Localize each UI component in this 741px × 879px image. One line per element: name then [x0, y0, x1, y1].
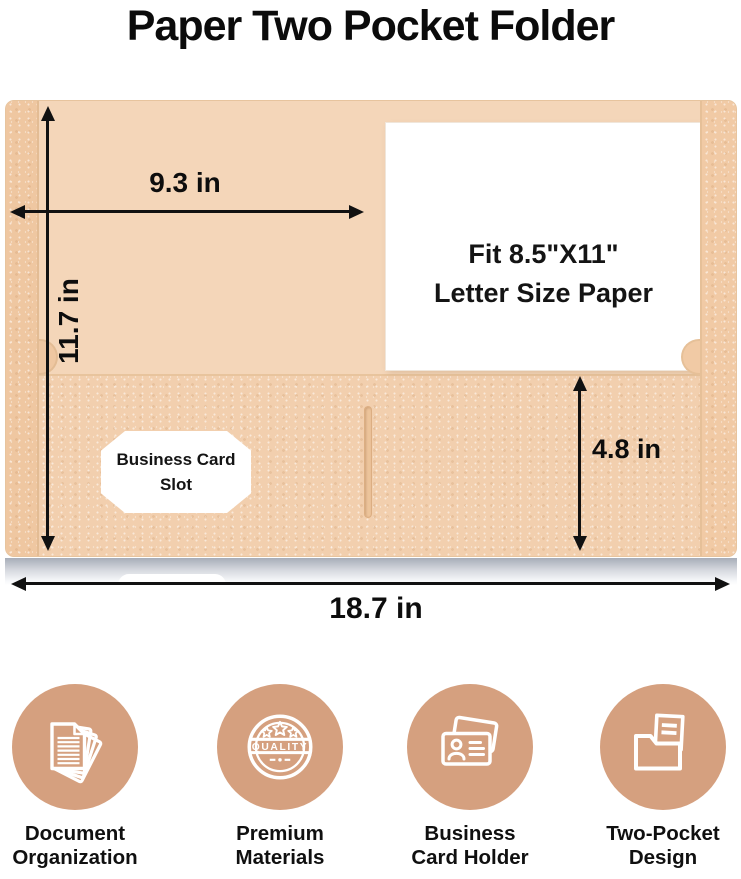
feature-document-organization: Document Organization	[0, 670, 180, 869]
feature-circle	[600, 684, 726, 810]
total-width-arrow	[19, 582, 722, 585]
letter-size-paper: Fit 8.5"X11" Letter Size Paper	[386, 123, 701, 370]
folder-bottom-shadow	[5, 558, 737, 585]
feature-label: Document Organization	[0, 822, 180, 869]
card-slot-line1: Business Card	[116, 447, 235, 473]
feature-label: Two-Pocket Design	[558, 822, 741, 869]
total-width-label: 18.7 in	[271, 592, 481, 626]
two-pocket-folder-icon	[623, 707, 703, 787]
paper-note-line1: Fit 8.5"X11"	[468, 239, 618, 270]
business-card-slot-label: Business Card Slot	[101, 431, 251, 513]
paper-note-line2: Letter Size Paper	[434, 278, 653, 309]
business-card-icon	[430, 707, 510, 787]
feature-label: Premium Materials	[175, 822, 385, 869]
feature-two-pocket-design: Two-Pocket Design	[558, 670, 741, 869]
pocket-center-slit	[364, 406, 372, 518]
height-dimension-label: 11.7 in	[53, 251, 91, 391]
product-infographic: Paper Two Pocket Folder Fit 8.5"X11" Let…	[0, 0, 741, 879]
feature-circle	[407, 684, 533, 810]
feature-label: Business Card Holder	[365, 822, 575, 869]
pocket-height-arrow	[578, 384, 581, 543]
width-dimension-arrow	[18, 210, 356, 213]
feature-circle	[12, 684, 138, 810]
folder-right-edge	[700, 101, 736, 556]
pocket-height-label: 4.8 in	[592, 434, 661, 465]
card-slot-line2: Slot	[160, 472, 192, 498]
width-dimension-label: 9.3 in	[100, 167, 270, 199]
document-stack-icon	[35, 707, 115, 787]
folder-left-spine	[6, 101, 39, 556]
feature-premium-materials: QUALITY Premium Materials	[175, 670, 385, 869]
height-dimension-arrow	[46, 114, 49, 543]
quality-badge-icon: QUALITY	[239, 706, 321, 788]
bottom-sheet-highlight	[118, 574, 226, 596]
feature-circle: QUALITY	[217, 684, 343, 810]
feature-business-card-holder: Business Card Holder	[365, 670, 575, 869]
quality-badge-text: QUALITY	[252, 742, 308, 753]
page-title: Paper Two Pocket Folder	[0, 2, 741, 51]
